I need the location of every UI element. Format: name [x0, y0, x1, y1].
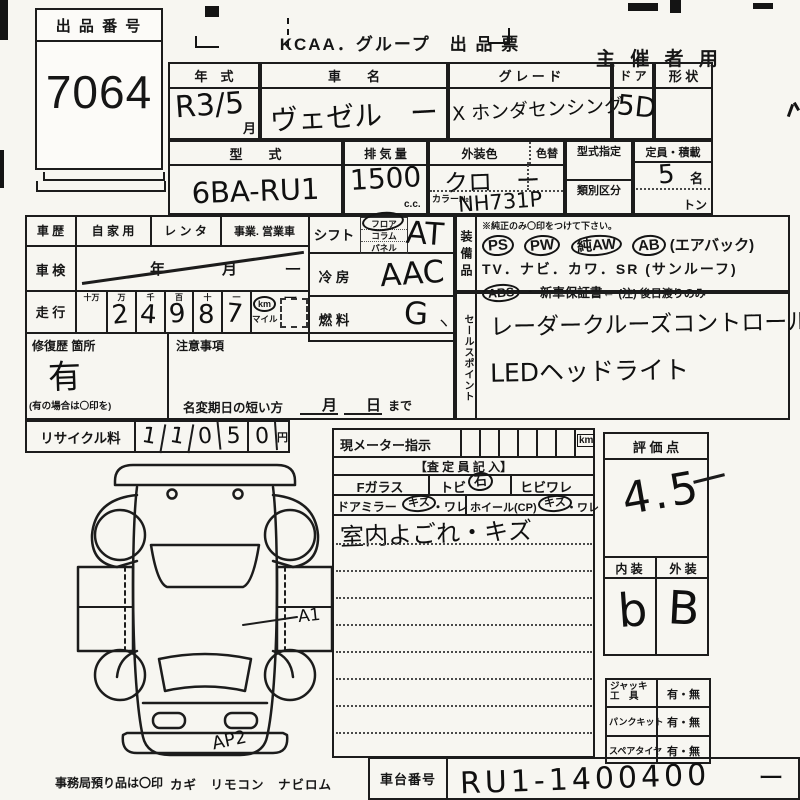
capacity-ton-unit: トン — [683, 196, 707, 213]
grid-line — [536, 428, 538, 456]
scan-artifact — [195, 36, 219, 48]
history-rental: レ ン タ — [152, 222, 219, 239]
inspection-label: 車 検 — [27, 260, 74, 279]
sales-point-2: LEDヘッドライト — [490, 350, 690, 389]
interior-grade: b — [616, 582, 649, 638]
recycle-digit: 0 — [248, 421, 278, 452]
equipment-ab: AB — [631, 234, 666, 258]
car-top-view-diagram — [75, 455, 335, 773]
page-title: KCAA．グループ 出 品 票 — [225, 30, 575, 55]
scan-artifact — [205, 6, 219, 17]
footer-note: 事務局預り品は〇印 — [55, 774, 163, 791]
blank-underline — [344, 413, 382, 415]
car-name-value: ヴェゼル ー — [261, 84, 447, 146]
grid-line — [25, 332, 455, 334]
exterior-grade: B — [667, 580, 701, 636]
door-mirror-label: ドアミラー — [337, 498, 397, 515]
fuel-check-mark: ヽ — [436, 312, 451, 333]
sales-point-side-label: セールスポイント — [457, 294, 477, 418]
recycle-fee-row: リサイクル料 1 1 0 5 0 円 — [25, 420, 290, 453]
door-label: ド ア — [614, 64, 652, 89]
grid-line — [498, 428, 500, 456]
exterior-label: 外 装 — [657, 560, 709, 577]
recycle-unit: 円 — [277, 422, 288, 451]
year-unit: 月 — [243, 118, 256, 137]
shape-label: 形 状 — [656, 64, 711, 89]
year-label: 年 式 — [170, 64, 258, 89]
ticket-number-value: 7064 — [37, 42, 161, 142]
footer-items: カギ リモコン ナビロム — [170, 774, 332, 793]
damage-label-a1: A1 — [297, 605, 321, 627]
ticket-box-shadow — [43, 172, 165, 181]
equipment-note: ※純正のみ〇印をつけて下さい。 — [482, 219, 786, 232]
repair-value: 有 — [47, 349, 82, 398]
fuel-value: G — [403, 295, 429, 332]
inspection-year-unit: 年 — [150, 258, 165, 279]
spare-tire-label: スペアタイヤ — [609, 744, 662, 757]
wheel-crack-label: ・ワレ — [566, 499, 599, 515]
scan-artifact — [0, 150, 4, 188]
shift-label: シフト — [310, 224, 358, 244]
chassis-label: 車台番号 — [370, 759, 448, 798]
grid-line — [167, 332, 169, 420]
scan-artifact — [793, 102, 800, 111]
history-label: 車 歴 — [27, 222, 74, 239]
ac-value: AAC — [379, 254, 446, 294]
grid-line — [510, 474, 512, 494]
assessor-entry-label: 【査 定 員 記 入】 — [332, 458, 595, 475]
mileage-digit: 2 — [110, 299, 130, 331]
glass-chip-label: トビ — [440, 477, 466, 496]
name-change-day: 日 — [366, 394, 381, 415]
class-division-label: 類別区分 — [567, 179, 631, 199]
capacity-divider — [636, 188, 710, 190]
note-line — [336, 543, 592, 545]
model-code-cell: 型 式 6BA-RU1 — [168, 140, 343, 215]
grid-line — [574, 428, 576, 456]
grid-line — [605, 706, 711, 708]
ticket-number-label: 出 品 番 号 — [37, 10, 161, 42]
name-change-month: 月 — [322, 394, 337, 415]
equipment-ab-suffix: (エアバック) — [670, 237, 754, 254]
condition-note: 室内よごれ・キズ — [339, 511, 532, 553]
mileage-digit: 9 — [168, 298, 187, 329]
equipment-ps: PS — [481, 234, 514, 257]
jack-tools-value: 有・無 — [658, 686, 709, 702]
scan-artifact — [787, 104, 794, 117]
ticket-box-shadow — [36, 181, 166, 192]
grid-line — [308, 295, 455, 297]
note-line — [336, 732, 592, 734]
grid-line — [250, 290, 252, 332]
meter-km-unit: km — [577, 434, 595, 447]
jack-tools-label: ジャッキ 工 具 — [610, 682, 648, 703]
meter-check-mark: ー — [283, 287, 298, 308]
car-name-cell: 車 名 ヴェゼル ー — [260, 62, 448, 140]
jack-label-line2: 工 具 — [610, 692, 648, 702]
note-line — [336, 705, 592, 707]
scan-artifact — [670, 0, 681, 13]
mileage-digit: 7 — [224, 298, 244, 330]
evaluation-label: 評 価 点 — [605, 434, 707, 460]
grade-label: グ レ ー ド — [450, 64, 610, 89]
scan-artifact — [753, 3, 773, 9]
recycle-digit: 0 — [191, 421, 222, 453]
equipment-box: 装備品 ※純正のみ〇印をつけて下さい。 PS PW 純AW AB (エアバック)… — [455, 215, 790, 292]
mileage-label: 走 行 — [27, 302, 74, 321]
capacity-unit: 名 — [690, 168, 703, 187]
auction-sheet: 出 品 番 号 7064 KCAA．グループ 出 品 票 主 催 者 用 年 式… — [0, 0, 800, 800]
sales-point-1: レーダークルーズコントロール — [490, 302, 800, 342]
fuel-label: 燃 料 — [310, 309, 358, 329]
scan-artifact — [628, 3, 658, 11]
puncture-kit-label: パンクキット — [609, 715, 663, 728]
note-line — [336, 624, 592, 626]
history-commercial: 事業. 営業車 — [222, 223, 307, 239]
scan-artifact — [0, 0, 8, 40]
equipment-line2: TV．ナビ．カワ．SR (サンルーフ) — [482, 259, 786, 279]
recycle-fee-label: リサイクル料 — [27, 422, 136, 451]
shift-option-column: コラム — [361, 230, 407, 242]
puncture-kit-value: 有・無 — [658, 714, 709, 730]
km-unit-badge: km — [253, 296, 276, 312]
grid-line — [308, 340, 455, 342]
grid-line — [460, 428, 462, 456]
type-designation-cell: 型式指定 類別区分 — [565, 140, 633, 215]
shift-value: AT — [405, 215, 445, 254]
grid-line — [25, 245, 308, 247]
name-change-label: 名変期日の短い方 — [183, 397, 283, 416]
ticket-number-box: 出 品 番 号 7064 — [35, 8, 163, 170]
note-line — [336, 597, 592, 599]
digit-header-100k: 十万 — [77, 292, 106, 303]
blank-underline — [300, 413, 338, 415]
recycle-digit: 5 — [221, 422, 249, 451]
grid-line — [428, 474, 430, 494]
capacity-value: 5 — [657, 159, 676, 190]
model-code-label: 型 式 — [170, 142, 341, 166]
mile-unit-label: マイル — [252, 313, 278, 325]
inspection-mark: ー — [284, 256, 302, 282]
interior-label: 内 装 — [603, 560, 655, 577]
mileage-digit: 8 — [198, 300, 215, 330]
repair-note: (有の場合は〇印を) — [29, 398, 111, 412]
mileage-digit: 4 — [139, 299, 158, 330]
current-meter-label: 現メーター指示 — [340, 435, 431, 454]
grid-line — [479, 428, 481, 456]
name-change-suffix: まで — [388, 397, 412, 414]
note-line — [336, 678, 592, 680]
type-designation-label: 型式指定 — [567, 142, 631, 160]
door-value: 5D — [615, 88, 658, 125]
history-private: 自 家 用 — [77, 222, 149, 239]
front-glass-label: Fガラス — [334, 477, 426, 496]
equipment-pw: PW — [523, 234, 561, 258]
model-code-value: 6BA-RU1 — [169, 163, 342, 219]
note-line — [336, 651, 592, 653]
chassis-mark: ー — [758, 758, 784, 795]
displacement-value: 1500 — [349, 160, 422, 197]
grid-line — [605, 735, 711, 737]
grid-line — [517, 428, 519, 456]
equipment-aw: 純AW — [570, 233, 623, 258]
year-value: R3/5 — [174, 86, 245, 126]
caution-label: 注意事項 — [176, 337, 224, 354]
displacement-unit: c.c. — [404, 199, 421, 210]
shift-option-panel: パネル — [361, 242, 407, 253]
shape-cell: 形 状 — [654, 62, 713, 140]
note-line — [336, 570, 592, 572]
glass-crack-label: ヒビワレ — [520, 477, 572, 496]
equipment-side-label: 装備品 — [457, 217, 477, 290]
ac-label: 冷 房 — [310, 266, 358, 286]
grid-line — [555, 428, 557, 456]
